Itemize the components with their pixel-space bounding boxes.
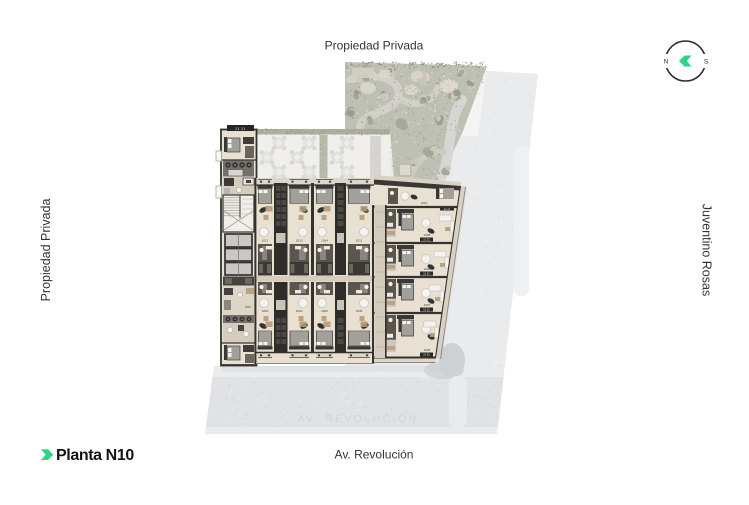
svg-text:1010: 1010 bbox=[421, 201, 428, 205]
svg-text:Propiedad Privada: Propiedad Privada bbox=[39, 199, 53, 302]
svg-text:Planta N10: Planta N10 bbox=[56, 447, 134, 464]
svg-text:1001: 1001 bbox=[245, 305, 251, 309]
svg-text:1009: 1009 bbox=[424, 267, 431, 271]
svg-text:1013: 1013 bbox=[296, 239, 303, 243]
svg-text:21 21: 21 21 bbox=[423, 353, 430, 357]
svg-text:Propiedad Privada: Propiedad Privada bbox=[325, 39, 424, 53]
svg-text:Av. Revolución: Av. Revolución bbox=[335, 448, 414, 462]
svg-text:Juventino Rosas: Juventino Rosas bbox=[700, 204, 714, 296]
svg-text:21 21: 21 21 bbox=[235, 127, 246, 131]
svg-text:1002: 1002 bbox=[296, 309, 303, 313]
svg-text:1008: 1008 bbox=[424, 233, 431, 237]
svg-text:1011: 1011 bbox=[356, 239, 363, 243]
svg-text:21 21: 21 21 bbox=[423, 238, 430, 242]
svg-text:AV. REVOLUCIÓN: AV. REVOLUCIÓN bbox=[297, 412, 418, 425]
svg-text:1012: 1012 bbox=[262, 239, 269, 243]
svg-text:1005: 1005 bbox=[424, 348, 431, 352]
svg-text:21 21: 21 21 bbox=[423, 272, 430, 276]
svg-text:1007: 1007 bbox=[424, 303, 431, 307]
svg-text:1003: 1003 bbox=[321, 309, 328, 313]
svg-text:1001: 1001 bbox=[262, 309, 269, 313]
svg-text:S: S bbox=[704, 58, 709, 65]
svg-text:1006: 1006 bbox=[356, 309, 363, 313]
svg-text:21 21: 21 21 bbox=[423, 308, 430, 312]
svg-text:N: N bbox=[664, 58, 669, 65]
svg-text:1014: 1014 bbox=[321, 239, 328, 243]
svg-text:1016: 1016 bbox=[245, 155, 251, 159]
